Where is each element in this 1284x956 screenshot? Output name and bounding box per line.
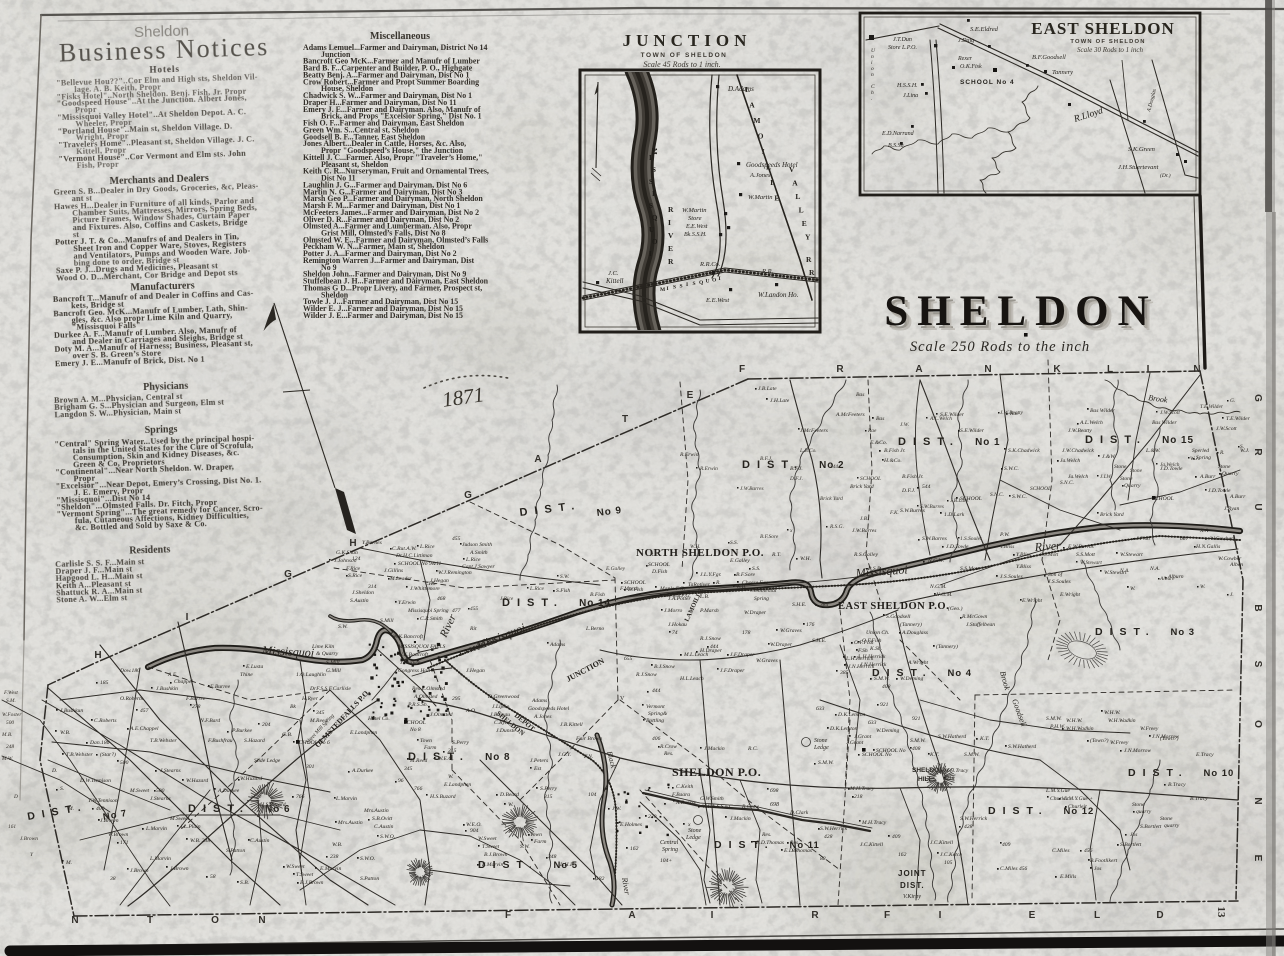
svg-text:H.N.Gallis: H.N.Gallis (1195, 544, 1220, 550)
svg-text:Wilder J. E...Farmer and Dairy: Wilder J. E...Farmer and Dairyman, Dist … (303, 311, 463, 320)
svg-text:Dow.180: Dow.180 (119, 668, 140, 674)
svg-text:L.B.Co.: L.B.Co. (799, 448, 817, 454)
svg-text:Vermont: Vermont (646, 704, 665, 710)
svg-text:S.Mill: S.Mill (380, 618, 394, 624)
svg-text:J.Peters: J.Peters (530, 758, 548, 764)
svg-text:R: R (1252, 448, 1263, 456)
svg-text:Brick Yard: Brick Yard (850, 484, 874, 490)
svg-text:G: G (464, 490, 472, 501)
svg-text:W.H.Wadkin: W.H.Wadkin (1108, 718, 1136, 724)
svg-text:E: E (1029, 910, 1036, 921)
svg-text:D.Clark: D.Clark (789, 810, 809, 816)
svg-text:E.Lusta: E.Lusta (245, 664, 263, 670)
svg-text:J.Stearns: J.Stearns (150, 796, 171, 802)
svg-text:J.Bushkun: J.Bushkun (60, 708, 83, 714)
svg-text:W.Foster: W.Foster (2, 712, 22, 718)
svg-text:D.Greenwood: D.Greenwood (487, 694, 520, 700)
svg-text:L.M.Y.Gue +: L.M.Y.Gue + (1063, 796, 1093, 802)
svg-text:Bas Wilder: Bas Wilder (1090, 408, 1116, 414)
svg-text:Spring: Spring (662, 847, 678, 853)
svg-text:Goodspeeds Hotel: Goodspeeds Hotel (746, 161, 798, 169)
svg-text:J.Brown: J.Brown (20, 836, 38, 842)
svg-text:58: 58 (210, 874, 216, 880)
svg-text:Y.Bliss: Y.Bliss (1016, 564, 1031, 570)
svg-text:R.T.: R.T. (771, 552, 781, 558)
svg-text:96: 96 (398, 778, 404, 784)
svg-text:No 4: No 4 (948, 668, 972, 679)
svg-text:O.K.Fisk: O.K.Fisk (960, 64, 982, 70)
svg-text:655: 655 (624, 656, 633, 662)
svg-text:Mrs.Austin: Mrs.Austin (363, 808, 389, 814)
svg-text:104: 104 (588, 792, 597, 798)
svg-text:J.Johnson: J.Johnson (334, 558, 357, 564)
svg-text:314: 314 (367, 584, 377, 590)
svg-text:P.Marsh: P.Marsh (699, 608, 719, 614)
svg-text:J.Mackin: J.Mackin (704, 746, 725, 752)
svg-text:L.Marvin: L.Marvin (149, 856, 171, 862)
svg-text:G.W.Smith: G.W.Smith (700, 796, 724, 802)
svg-text:162: 162 (630, 846, 639, 852)
svg-text:I: I (668, 218, 671, 227)
svg-text:O: O (652, 238, 658, 246)
svg-text:J.Daig: J.Daig (958, 38, 974, 44)
svg-text:Stone: Stone (1160, 816, 1173, 822)
svg-text:H: H (349, 538, 356, 549)
svg-text:Town: Town (420, 738, 432, 744)
svg-text:I: I (1147, 364, 1150, 375)
svg-text:O: O (758, 132, 764, 141)
svg-text:W.Draper: W.Draper (744, 610, 767, 616)
svg-text:J.W.Chadwick: J.W.Chadwick (1062, 448, 1094, 454)
svg-text:218: 218 (946, 776, 955, 782)
svg-text:Q: Q (699, 280, 704, 286)
svg-text:O.F.Fish: O.F.Fish (854, 640, 874, 646)
svg-text:698: 698 (770, 802, 779, 808)
svg-text:J.LW.: J.LW. (1100, 474, 1112, 480)
svg-text:Spring&: Spring& (648, 711, 668, 717)
svg-text:DIST.: DIST. (988, 805, 1049, 817)
svg-text:J.Brown: J.Brown (170, 866, 189, 872)
svg-text:No 14: No 14 (579, 598, 611, 609)
svg-text:Stone: Stone (1114, 464, 1127, 470)
svg-text:M: M (660, 287, 666, 293)
svg-text:U: U (1252, 503, 1263, 510)
svg-text:B.F.Goodsell: B.F.Goodsell (1032, 54, 1066, 61)
svg-text:W.: W. (448, 774, 454, 780)
svg-text:M.Reed: M.Reed (409, 758, 427, 764)
svg-text:M.H.Tracy: M.H.Tracy (849, 786, 875, 792)
svg-text:Stone: Stone (688, 828, 702, 834)
svg-text:S.W.Burres: S.W.Burres (920, 504, 944, 510)
svg-text:C.Ryia: C.Ryia (494, 720, 509, 726)
svg-text:L.B.: L.B. (699, 594, 709, 600)
svg-text:W.B.: W.B. (332, 842, 342, 848)
svg-text:J.&W.: J.&W. (1102, 454, 1116, 460)
svg-text:J.Whittemore: J.Whittemore (410, 586, 440, 592)
svg-text:H.&Co.: H.&Co. (883, 458, 902, 464)
svg-text:W.F.A.S.S.F.C.: W.F.A.S.S.F.C. (702, 804, 734, 810)
svg-text:Sperled: Sperled (1192, 448, 1209, 454)
svg-text:400: 400 (96, 806, 105, 812)
svg-text:238: 238 (330, 854, 339, 860)
svg-text:E.Landphen: E.Landphen (443, 782, 471, 788)
svg-text:W.Stewart: W.Stewart (1120, 552, 1143, 558)
svg-text:T.E.Wilder: T.E.Wilder (1226, 416, 1251, 422)
svg-text:x: x (789, 528, 793, 534)
svg-text:1.S.Soules: 1.S.Soules (960, 536, 982, 542)
svg-text:B.Fish: B.Fish (590, 592, 605, 598)
svg-text:182: 182 (596, 876, 605, 882)
svg-text:B: B (1252, 604, 1263, 611)
svg-text:S: S (693, 281, 696, 287)
svg-text:Bas: Bas (876, 416, 884, 422)
svg-text:(Star?): (Star?) (100, 751, 116, 758)
svg-text:S.W.: S.W. (560, 574, 569, 580)
svg-text:G.: G. (1230, 398, 1235, 404)
svg-text:A.Jones: A.Jones (749, 172, 771, 179)
svg-text:B.F.J.: B.F.J. (760, 456, 772, 462)
svg-text:S.M.W.: S.M.W. (1046, 716, 1062, 722)
svg-text:S.Patton: S.Patton (226, 848, 245, 854)
svg-text:S.Fish: S.Fish (556, 588, 570, 594)
svg-text:J.L.Y.Fgr.: J.L.Y.Fgr. (700, 572, 722, 578)
svg-text:N.A.: N.A. (1149, 566, 1160, 572)
svg-text:R.McGown: R.McGown (961, 614, 988, 620)
svg-text:E.Wright: E.Wright (1021, 598, 1042, 604)
svg-text:SCHOOL: SCHOOL (1030, 486, 1051, 492)
svg-text:Rae: Rae (867, 428, 877, 434)
svg-text:295: 295 (452, 696, 461, 702)
svg-text:W.Cowber: W.Cowber (1210, 536, 1234, 542)
svg-text:455: 455 (452, 536, 461, 542)
svg-text:Dan.186: Dan.186 (89, 740, 110, 746)
svg-text:R.: R. (1219, 450, 1225, 456)
svg-text:C.R.Smith: C.R.Smith (420, 616, 443, 622)
svg-text:W.: W. (508, 802, 514, 808)
svg-text:S.W.Hatherd: S.W.Hatherd (938, 734, 966, 740)
svg-text:E.Tracy: E.Tracy (1195, 752, 1214, 758)
svg-text:N: N (258, 915, 265, 926)
svg-text:U: U (649, 226, 654, 234)
svg-text:F.West: F.West (3, 690, 18, 696)
svg-text:278: 278 (192, 704, 201, 710)
svg-text:88: 88 (820, 856, 826, 862)
svg-text:Scale 30 Rods to 1 inch: Scale 30 Rods to 1 inch (1077, 46, 1143, 54)
svg-text:1.Q.Laughlin: 1.Q.Laughlin (296, 672, 326, 678)
svg-text:185: 185 (100, 680, 109, 686)
svg-text:S.W.C.: S.W.C. (1004, 466, 1019, 472)
svg-text:Stone: Stone (1132, 802, 1145, 808)
svg-text:Churleit: Churleit (1068, 804, 1087, 810)
svg-text:L: L (1107, 364, 1113, 375)
svg-text:No 10: No 10 (1204, 768, 1235, 779)
svg-text:J.Dunste: J.Dunste (496, 728, 516, 734)
svg-text:J.W.Scott: J.W.Scott (1216, 426, 1237, 432)
svg-text:W.H.: W.H. (690, 544, 701, 550)
svg-text:S.Austin: S.Austin (350, 598, 369, 604)
svg-text:385: 385 (819, 602, 829, 608)
svg-text:S: S (680, 283, 683, 289)
svg-text:455: 455 (470, 606, 478, 612)
svg-text:J.Stuffelbean: J.Stuffelbean (966, 621, 995, 628)
svg-text:C.Rut.A.W.: C.Rut.A.W. (392, 546, 417, 552)
svg-text:(Tannery): (Tannery) (900, 621, 922, 628)
svg-text:S.W.: S.W. (338, 624, 348, 630)
svg-text:A: A (749, 101, 755, 110)
svg-text:Kittell: Kittell (605, 277, 624, 285)
svg-text:J.W.Scott: J.W.Scott (1160, 410, 1180, 416)
svg-text:Judson Smith: Judson Smith (462, 542, 492, 548)
svg-text:Bk.S.S.H.: Bk.S.S.H. (684, 232, 707, 238)
svg-text:F.N.: F.N. (583, 754, 593, 760)
svg-text:S.Hazard: S.Hazard (244, 738, 265, 744)
svg-text:W.Graves: W.Graves (780, 628, 802, 634)
svg-text:K.Sh.: K.Sh. (869, 646, 882, 652)
svg-text:L.M.Y.Gue: L.M.Y.Gue (1045, 788, 1070, 794)
svg-text:(Tannery): (Tannery) (936, 643, 958, 650)
svg-text:S.W.Herrick: S.W.Herrick (960, 816, 988, 822)
svg-text:S.M.W.: S.M.W. (910, 738, 926, 744)
svg-text:SCHOOL No 9&11: SCHOOL No 9&11 (398, 561, 442, 567)
svg-text:J.B.Lark: J.B.Lark (950, 498, 969, 504)
svg-text:Albure: Albure (1159, 576, 1175, 582)
svg-text:G.Mill: G.Mill (326, 668, 341, 674)
svg-text:SCHOOL No 4: SCHOOL No 4 (960, 79, 1015, 86)
svg-text:J.C.Kittell: J.C.Kittell (860, 842, 883, 848)
svg-text:EAST SHELDON P.O.: EAST SHELDON P.O. (838, 601, 949, 612)
svg-text:S.Rice: S.Rice (348, 573, 363, 579)
svg-text:M.B.: M.B. (1, 732, 12, 738)
svg-text:Son of: Son of (1048, 571, 1064, 578)
svg-text:S.Perry: S.Perry (540, 786, 557, 792)
svg-text:S.S.Mott: S.S.Mott (1040, 552, 1059, 558)
svg-text:S.: S. (60, 786, 64, 792)
svg-text:E.Marvin: E.Marvin (319, 866, 341, 872)
svg-text:E.E.West: E.E.West (705, 297, 729, 304)
svg-text:F.Baara: F.Baara (671, 792, 690, 798)
svg-text:D.Adams: D.Adams (727, 85, 754, 93)
svg-text:J.: J. (1230, 592, 1234, 598)
svg-text:B.F.Sore: B.F.Sore (760, 534, 779, 540)
svg-text:W.B.: W.B. (60, 730, 70, 736)
svg-text:Goodspeeds Hotel: Goodspeeds Hotel (528, 706, 570, 712)
svg-text:Farm: Farm (423, 745, 436, 751)
svg-text:H.S.Buzard: H.S.Buzard (429, 794, 456, 800)
svg-text:Fish, Propr: Fish, Propr (77, 160, 120, 170)
svg-text:G.B.: G.B. (282, 732, 292, 738)
svg-text:V: V (668, 231, 674, 240)
svg-text:T.B.Webster: T.B.Webster (66, 752, 94, 758)
svg-text:L: L (1094, 910, 1100, 921)
svg-text:I: I (686, 282, 688, 288)
svg-text:S.M.W.: S.M.W. (964, 752, 980, 758)
svg-text:J.Lina: J.Lina (903, 93, 918, 99)
svg-text:J.Bushkin: J.Bushkin (156, 686, 178, 692)
svg-text:R.J.Snow: R.J.Snow (635, 672, 657, 678)
svg-text:J.W.Barres: J.W.Barres (852, 528, 876, 534)
svg-text:Adams: Adams (531, 698, 547, 704)
svg-text:S.W.Barres: S.W.Barres (922, 536, 947, 542)
svg-text:C.Austin: C.Austin (250, 838, 270, 844)
svg-text:Adams: Adams (549, 642, 565, 648)
svg-text:Chappel: Chappel (174, 679, 193, 685)
svg-text:Res.: Res. (789, 840, 799, 846)
svg-text:& Quarry: & Quarry (316, 651, 339, 657)
svg-text:J.W.: J.W. (612, 806, 622, 812)
svg-text:Town: Town (530, 832, 542, 838)
svg-text:R.C.: R.C. (747, 746, 758, 752)
svg-text:Stone: Stone (814, 738, 828, 744)
svg-text:E.D.Narrand: E.D.Narrand (881, 131, 915, 137)
svg-text:E.&Co.: E.&Co. (869, 440, 887, 446)
svg-text:L.Berno: L.Berno (585, 626, 604, 632)
svg-text:L: L (799, 206, 804, 215)
svg-text:J.Mackin: J.Mackin (730, 816, 751, 822)
svg-text:n: n (871, 72, 874, 78)
svg-text:H.L.Leach: H.L.Leach (679, 676, 704, 682)
svg-text:A.Wright: A.Wright (907, 660, 928, 666)
svg-text:I: I (649, 250, 652, 258)
svg-text:D.Fish: D.Fish (651, 569, 668, 575)
svg-text:E.Burree: E.Burree (209, 684, 231, 690)
svg-text:I: I (652, 190, 655, 198)
svg-text:Fair Brown: Fair Brown (575, 736, 602, 742)
svg-text:S.W.: S.W. (520, 844, 530, 850)
svg-text:B.F.S.S.F.G.: B.F.S.S.F.G. (664, 593, 691, 599)
svg-text:A.Olmsted: A.Olmsted (413, 694, 438, 700)
svg-text:S.K.Chadwick: S.K.Chadwick (1008, 448, 1040, 454)
svg-text:X.A: X.A (1199, 528, 1209, 534)
svg-text:S.Mill: S.Mill (326, 660, 340, 666)
svg-text:162: 162 (898, 852, 907, 858)
svg-text:W.Martin: W.Martin (682, 207, 707, 214)
svg-text:I: I (762, 147, 765, 156)
svg-text:A.L.Welch: A.L.Welch (929, 416, 952, 422)
svg-text:J.C.: J.C. (608, 270, 619, 277)
svg-text:Ja.Welch: Ja.Welch (1160, 462, 1180, 468)
svg-text:Ja.Welch: Ja.Welch (1060, 458, 1080, 464)
svg-text:L.Marvin: L.Marvin (335, 796, 357, 802)
svg-text:M.W.: M.W. (1, 756, 13, 762)
svg-text:S.W.Herrick: S.W.Herrick (820, 826, 848, 832)
svg-text:204: 204 (262, 722, 271, 728)
svg-text:M.Leader: M.Leader (389, 576, 413, 582)
svg-text:SHELDON: SHELDON (884, 288, 1157, 335)
svg-text:348: 348 (547, 854, 557, 860)
svg-text:Maple F.G.: Maple F.G. (659, 586, 685, 592)
svg-text:Bas Wilder: Bas Wilder (1152, 420, 1178, 426)
svg-text:Continental: Continental (750, 588, 777, 594)
svg-text:S.S.Mott: S.S.Mott (1076, 552, 1095, 558)
svg-text:L.H.B.: L.H.B. (559, 862, 575, 868)
svg-text:W.Landon Ho.: W.Landon Ho. (758, 291, 799, 299)
svg-text:921: 921 (912, 716, 921, 722)
svg-text:S.B.Ovitt: S.B.Ovitt (372, 816, 393, 822)
svg-text:O: O (1252, 720, 1263, 728)
svg-text:SCHOOL No 6: SCHOOL No 6 (296, 740, 330, 746)
svg-text:G: G (284, 569, 292, 580)
svg-text:B.F.J.: B.F.J. (790, 466, 803, 472)
svg-text:x: x (687, 822, 691, 828)
svg-text:457: 457 (140, 708, 149, 714)
svg-text:D.: D. (51, 768, 57, 774)
svg-text:G.K.Shun: G.K.Shun (336, 550, 358, 556)
svg-text:408: 408 (912, 746, 921, 752)
svg-text:456: 456 (1084, 848, 1093, 854)
svg-text:F.K.: F.K. (889, 510, 899, 516)
svg-text:S.Perry: S.Perry (452, 740, 469, 746)
svg-text:O.Roberts: O.Roberts (120, 696, 143, 702)
svg-text:409: 409 (892, 834, 901, 840)
svg-text:J.Stearns: J.Stearns (160, 768, 181, 774)
svg-text:Hotels: Hotels (149, 64, 180, 75)
svg-text:L.Rice: L.Rice (465, 557, 481, 563)
svg-text:H.S.S.H.: H.S.S.H. (896, 83, 918, 89)
svg-text:B.S.Sh.: B.S.Sh. (888, 143, 905, 149)
svg-text:N.F.Bard: N.F.Bard (199, 718, 220, 724)
svg-text:S.M.W.: S.M.W. (874, 676, 890, 682)
svg-text:S.W.Hatherd: S.W.Hatherd (1008, 744, 1036, 750)
svg-text:TaRotiver: TaRotiver (688, 582, 711, 588)
svg-text:DrF.S.S.F.Carlisle: DrF.S.S.F.Carlisle (309, 686, 351, 692)
svg-text:A.Smith: A.Smith (469, 550, 488, 556)
svg-text:Stone: Stone (1218, 464, 1231, 470)
svg-text:E.Holmes: E.Holmes (619, 822, 642, 828)
svg-text:A.E.Chappel: A.E.Chappel (129, 726, 159, 732)
svg-text:No 15: No 15 (1162, 435, 1194, 446)
svg-text:L.H.Herrick: L.H.Herrick (845, 656, 874, 662)
svg-text:J.Rice: J.Rice (500, 596, 514, 602)
svg-text:E: E (802, 219, 807, 228)
svg-text:U: U (706, 279, 710, 285)
svg-text:R: R (806, 255, 812, 264)
svg-text:Central: Central (660, 840, 679, 846)
svg-text:M: M (753, 116, 760, 125)
svg-text:A.L.Welch: A.L.Welch (1079, 420, 1103, 426)
svg-text:R.T.: R.T. (649, 552, 659, 558)
svg-text:176: 176 (806, 622, 815, 628)
svg-text:(Town?): (Town?) (1090, 737, 1109, 744)
svg-text:766: 766 (414, 786, 423, 792)
svg-text:T: T (622, 414, 628, 425)
svg-text:B.F.Sore: B.F.Sore (736, 572, 755, 578)
svg-text:W.B. 238: W.B. 238 (190, 838, 210, 844)
svg-text:T: T (147, 915, 153, 926)
svg-text:SCHOOL: SCHOOL (860, 476, 881, 482)
svg-text:M.L.Leach: M.L.Leach (683, 652, 708, 658)
svg-text:J.Morro: J.Morro (664, 608, 682, 614)
svg-text:345: 345 (403, 766, 413, 772)
svg-text:Quarry: Quarry (1124, 483, 1141, 489)
svg-text:R: R (836, 364, 844, 375)
svg-text:Q: Q (652, 214, 658, 222)
svg-text:D.F.J.: D.F.J. (901, 488, 915, 494)
svg-text:C.Keith: C.Keith (676, 784, 693, 790)
svg-text:D.Fish: D.Fish (627, 587, 644, 593)
svg-text:105: 105 (944, 860, 953, 866)
svg-text:Springs: Springs (144, 424, 177, 436)
svg-text:Brick Yard: Brick Yard (820, 496, 843, 502)
svg-text:J.T.Dun: J.T.Dun (893, 37, 912, 43)
svg-text:F: F (505, 910, 511, 921)
svg-text:R: R (811, 910, 819, 921)
svg-text:161: 161 (8, 824, 16, 830)
svg-text:W.Draper: W.Draper (770, 642, 793, 648)
svg-text:P.R.S.Sh.: P.R.S.Sh. (407, 702, 428, 708)
svg-text:N.G.W.: N.G.W. (927, 558, 945, 564)
svg-text:H.S.Buzard: H.S.Buzard (259, 802, 286, 808)
svg-text:E.E.West: E.E.West (685, 224, 708, 230)
